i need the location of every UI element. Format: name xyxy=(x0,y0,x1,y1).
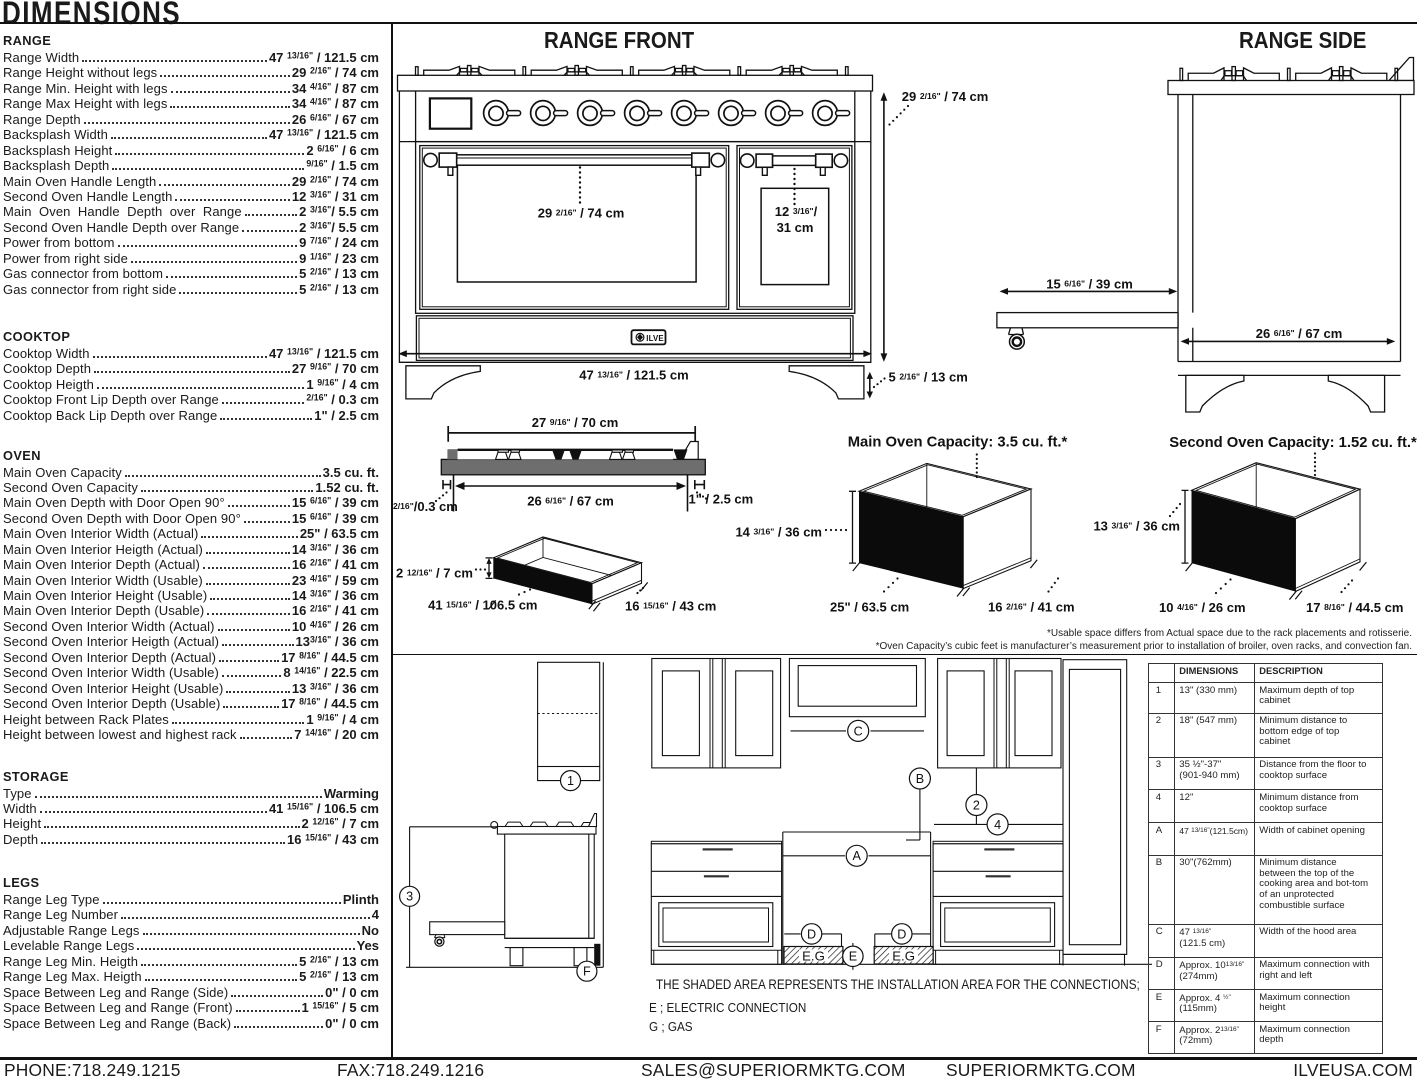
svg-text:15 6/16" / 39 cm: 15 6/16" / 39 cm xyxy=(1046,277,1133,292)
svg-text:25" / 63.5 cm: 25" / 63.5 cm xyxy=(830,600,909,615)
svg-text:5 2/16" / 13 cm: 5 2/16" / 13 cm xyxy=(889,370,968,385)
svg-text:E: E xyxy=(849,950,857,964)
svg-text:14 3/16" / 36 cm: 14 3/16" / 36 cm xyxy=(735,525,822,540)
svg-text:31 cm: 31 cm xyxy=(777,220,814,235)
svg-text:10 4/16" / 26 cm: 10 4/16" / 26 cm xyxy=(1159,600,1246,615)
svg-text:C: C xyxy=(854,724,863,738)
svg-text:1" / 2.5 cm: 1" / 2.5 cm xyxy=(689,492,754,507)
svg-text:2/16"/0.3 cm: 2/16"/0.3 cm xyxy=(393,499,458,514)
svg-text:13 3/16" / 36 cm: 13 3/16" / 36 cm xyxy=(1093,519,1180,534)
svg-text:F: F xyxy=(583,965,591,979)
svg-text:E.G: E.G xyxy=(892,948,915,963)
svg-text:27 9/16" / 70 cm: 27 9/16" / 70 cm xyxy=(532,415,619,430)
svg-text:41 15/16" / 106.5 cm: 41 15/16" / 106.5 cm xyxy=(428,598,537,613)
svg-text:Main Oven Capacity: 3.5 cu. ft: Main Oven Capacity: 3.5 cu. ft.* xyxy=(848,435,1068,451)
svg-text:4: 4 xyxy=(994,818,1001,832)
svg-text:16 2/16" / 41 cm: 16 2/16" / 41 cm xyxy=(988,600,1075,615)
svg-text:26 6/16" / 67 cm: 26 6/16" / 67 cm xyxy=(1256,326,1343,341)
svg-text:26 6/16" / 67 cm: 26 6/16" / 67 cm xyxy=(527,494,614,509)
svg-text:E.G: E.G xyxy=(802,948,825,963)
svg-text:2 12/16" / 7 cm: 2 12/16" / 7 cm xyxy=(396,566,473,581)
svg-text:A: A xyxy=(852,849,861,863)
svg-text:1: 1 xyxy=(567,774,574,788)
svg-text:2: 2 xyxy=(973,798,980,812)
svg-text:B: B xyxy=(916,772,924,786)
svg-text:29 2/16" / 74 cm: 29 2/16" / 74 cm xyxy=(902,89,989,104)
svg-text:29 2/16" / 74 cm: 29 2/16" / 74 cm xyxy=(538,206,625,221)
svg-text:Second Oven Capacity: 1.52 cu.: Second Oven Capacity: 1.52 cu. ft.* xyxy=(1169,435,1417,451)
svg-text:D: D xyxy=(897,927,906,941)
svg-text:16 15/16" / 43 cm: 16 15/16" / 43 cm xyxy=(625,599,716,614)
svg-text:17 8/16" / 44.5 cm: 17 8/16" / 44.5 cm xyxy=(1306,600,1403,615)
svg-text:3: 3 xyxy=(406,890,413,904)
svg-text:ILVE: ILVE xyxy=(646,334,664,343)
svg-text:D: D xyxy=(807,927,816,941)
svg-text:47 13/16" / 121.5 cm: 47 13/16" / 121.5 cm xyxy=(579,368,688,383)
svg-text:12 3/16"/: 12 3/16"/ xyxy=(775,204,818,219)
